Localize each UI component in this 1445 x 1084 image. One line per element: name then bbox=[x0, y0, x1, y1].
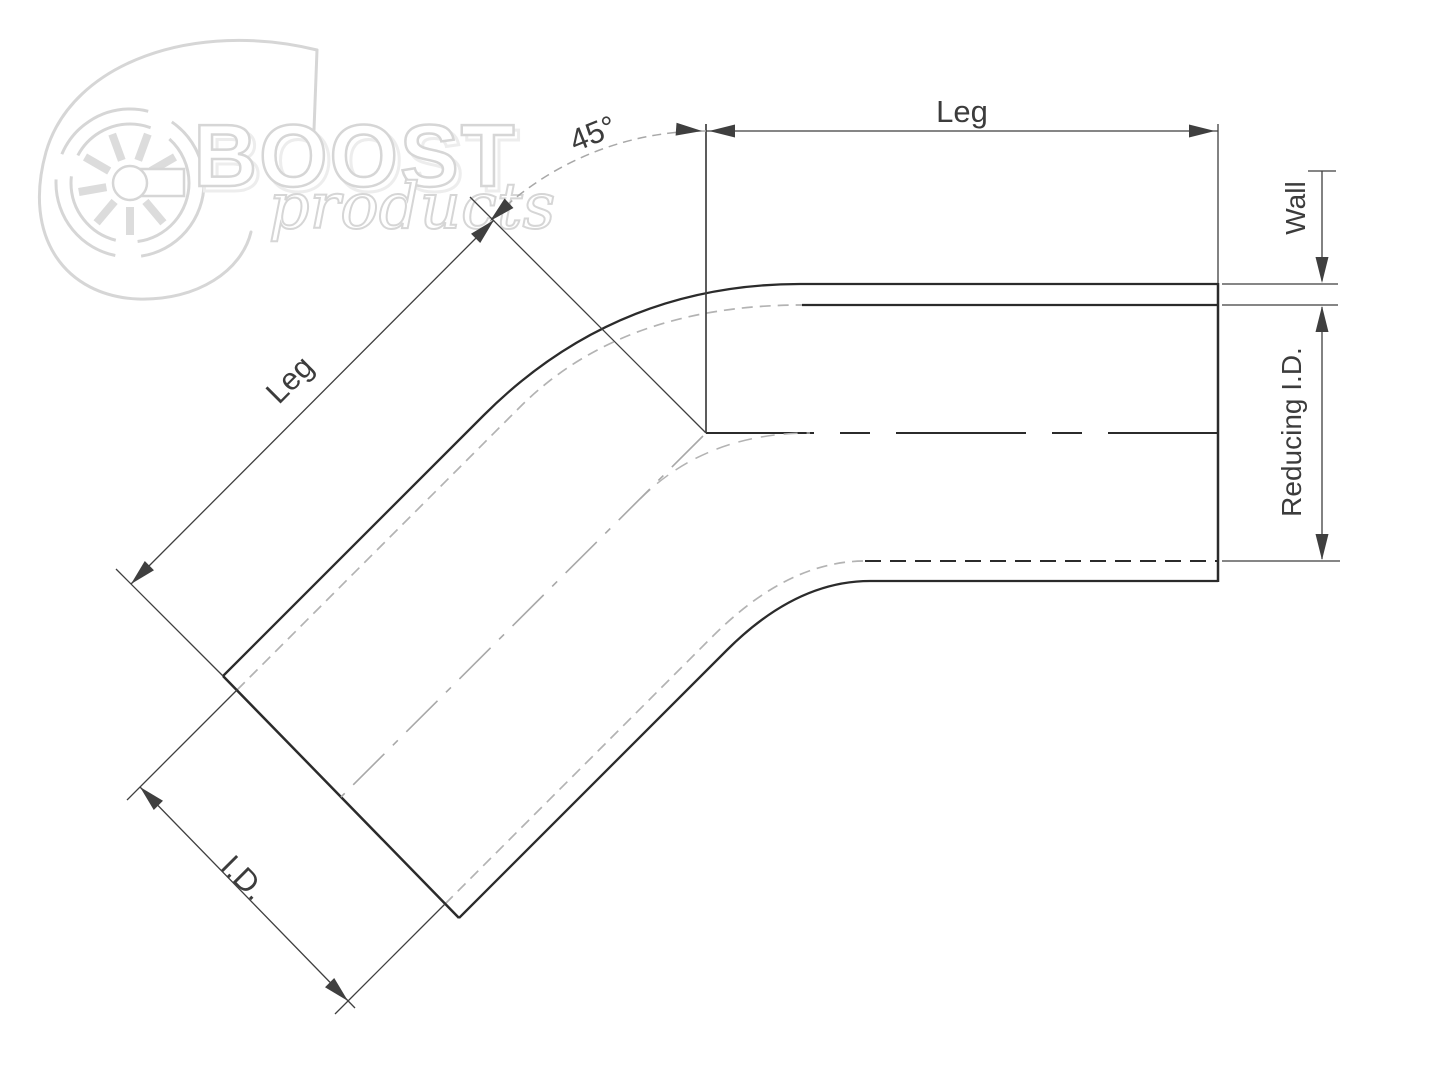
angle-extension-ray bbox=[470, 197, 706, 433]
leg-angled-label: Leg bbox=[259, 349, 320, 410]
leg-angled-dimension-line bbox=[131, 220, 494, 584]
id-label: I.D. bbox=[214, 848, 273, 907]
leg-top-arrow-right bbox=[1189, 125, 1215, 138]
reducing-id-label: Reducing I.D. bbox=[1276, 347, 1307, 517]
drawing-svg: BOOST BOOST products bbox=[0, 0, 1445, 1084]
id-extension-line-upper bbox=[127, 690, 237, 800]
reducing-id-arrow-top bbox=[1316, 306, 1329, 332]
leg-top-label: Leg bbox=[936, 94, 988, 129]
id-extension-line-lower bbox=[335, 904, 445, 1014]
dimensions bbox=[116, 123, 1340, 1014]
wall-arrow bbox=[1316, 257, 1329, 283]
boost-logo-watermark: BOOST BOOST products bbox=[39, 40, 555, 299]
pipe-bottom-inner-hidden-curve bbox=[445, 561, 865, 904]
extension-line-angled-end bbox=[116, 569, 223, 676]
pipe-bottom-outer-line bbox=[459, 581, 1218, 918]
leg-top-arrow-left bbox=[709, 125, 735, 138]
angle-label: 45° bbox=[565, 108, 622, 158]
bend-centerline-arc bbox=[640, 433, 810, 499]
pipe-outline bbox=[223, 283, 1218, 918]
angled-centerline bbox=[341, 436, 703, 797]
wall-label: Wall bbox=[1280, 181, 1311, 234]
reducing-id-arrow-bottom bbox=[1316, 534, 1329, 560]
centerlines bbox=[341, 433, 1218, 797]
wheel-hub bbox=[113, 166, 147, 200]
elbow-reducer-technical-drawing: BOOST BOOST products bbox=[0, 0, 1445, 1084]
angle-arc-arrow-right bbox=[676, 123, 703, 138]
